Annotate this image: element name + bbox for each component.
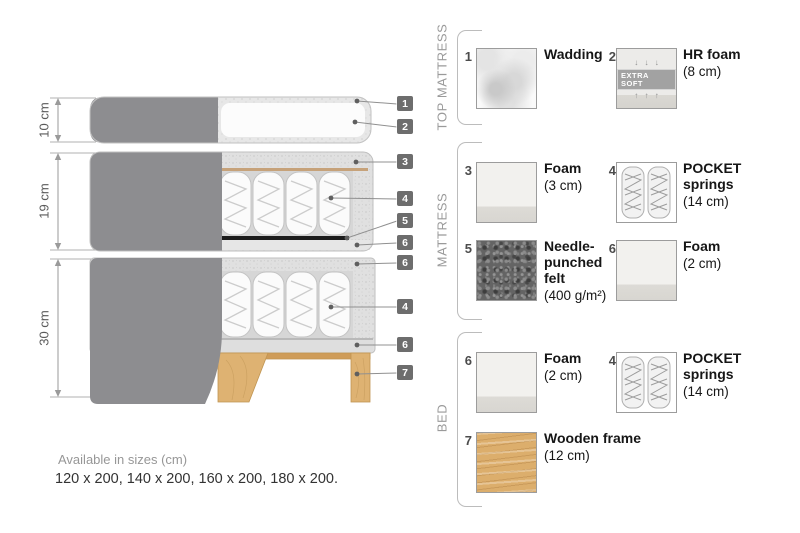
item-label: HR foam (8 cm) xyxy=(683,47,759,79)
item-detail: (2 cm) xyxy=(683,256,757,271)
section-label-bed: BED xyxy=(435,404,450,433)
top-mattress-section xyxy=(90,97,371,143)
item-number: 5 xyxy=(458,241,472,256)
compression-arrows-up-icon: ↑ ↑ ↑ xyxy=(632,91,660,101)
callout-chip: 6 xyxy=(397,235,413,250)
dimension-label-top-mattress: 10 cm xyxy=(37,102,52,137)
material-swatch-wood xyxy=(476,432,537,493)
callout-chip: 6 xyxy=(397,337,413,352)
item-label: POCKET springs (14 cm) xyxy=(683,161,757,209)
sizes-list: 120 x 200, 140 x 200, 160 x 200, 180 x 2… xyxy=(55,471,338,487)
callout-chip: 6 xyxy=(397,255,413,270)
item-name: Wooden frame xyxy=(544,431,684,447)
item-number: 4 xyxy=(602,163,616,178)
dimension-label-bed: 30 cm xyxy=(37,310,52,345)
compression-arrows-down-icon: ↓ ↓ ↓ xyxy=(632,58,660,68)
material-swatch-felt xyxy=(476,240,537,301)
callout-chip: 7 xyxy=(397,365,413,380)
item-name: Foam xyxy=(544,351,610,367)
item-detail: (8 cm) xyxy=(683,64,759,79)
material-swatch-foam xyxy=(476,352,537,413)
item-detail: (14 cm) xyxy=(683,384,757,399)
sizes-heading: Available in sizes (cm) xyxy=(58,452,187,467)
item-name: Foam xyxy=(544,161,610,177)
item-label: POCKET springs (14 cm) xyxy=(683,351,757,399)
item-detail: (12 cm) xyxy=(544,448,684,463)
pocket-springs-icon xyxy=(617,163,676,222)
item-name: POCKET springs xyxy=(683,161,757,193)
item-name: Foam xyxy=(683,239,757,255)
callout-chip: 4 xyxy=(397,299,413,314)
callout-chip: 5 xyxy=(397,213,413,228)
extra-soft-badge: EXTRA SOFT xyxy=(617,69,676,90)
item-detail: (14 cm) xyxy=(683,194,757,209)
item-number: 2 xyxy=(602,49,616,64)
section-label-mattress: MATTRESS xyxy=(435,193,450,268)
callout-chip: 3 xyxy=(397,154,413,169)
material-swatch-hr-foam: ↓ ↓ ↓ EXTRA SOFT ↑ ↑ ↑ xyxy=(616,48,677,109)
material-swatch-wadding xyxy=(476,48,537,109)
item-number: 3 xyxy=(458,163,472,178)
item-name: HR foam xyxy=(683,47,759,63)
item-detail: (2 cm) xyxy=(544,368,610,383)
bed-base-section xyxy=(90,258,375,404)
item-number: 6 xyxy=(458,353,472,368)
wooden-frame xyxy=(218,353,370,402)
item-number: 1 xyxy=(458,49,472,64)
item-number: 6 xyxy=(602,241,616,256)
item-detail: (400 g/m²) xyxy=(544,288,612,303)
material-swatch-foam xyxy=(476,162,537,223)
pocket-springs-icon xyxy=(617,353,676,412)
item-detail: (3 cm) xyxy=(544,178,610,193)
material-swatch-pocket-springs xyxy=(616,162,677,223)
item-number: 4 xyxy=(602,353,616,368)
mattress-construction-infographic: 10 cm 19 cm 30 cm 1 2 3 4 5 6 6 4 6 7 TO… xyxy=(0,0,800,533)
material-swatch-foam xyxy=(616,240,677,301)
item-label: Foam (2 cm) xyxy=(544,351,610,383)
item-label: Wooden frame (12 cm) xyxy=(544,431,684,463)
dimension-label-mattress: 19 cm xyxy=(37,183,52,218)
item-number: 7 xyxy=(458,433,472,448)
callout-chip: 1 xyxy=(397,96,413,111)
material-swatch-pocket-springs xyxy=(616,352,677,413)
item-label: Foam (2 cm) xyxy=(683,239,757,271)
item-label: Foam (3 cm) xyxy=(544,161,610,193)
mattress-section xyxy=(90,152,373,251)
section-label-top-mattress: TOP MATTRESS xyxy=(435,24,450,131)
callout-chip: 2 xyxy=(397,119,413,134)
item-name: POCKET springs xyxy=(683,351,757,383)
callout-chip: 4 xyxy=(397,191,413,206)
